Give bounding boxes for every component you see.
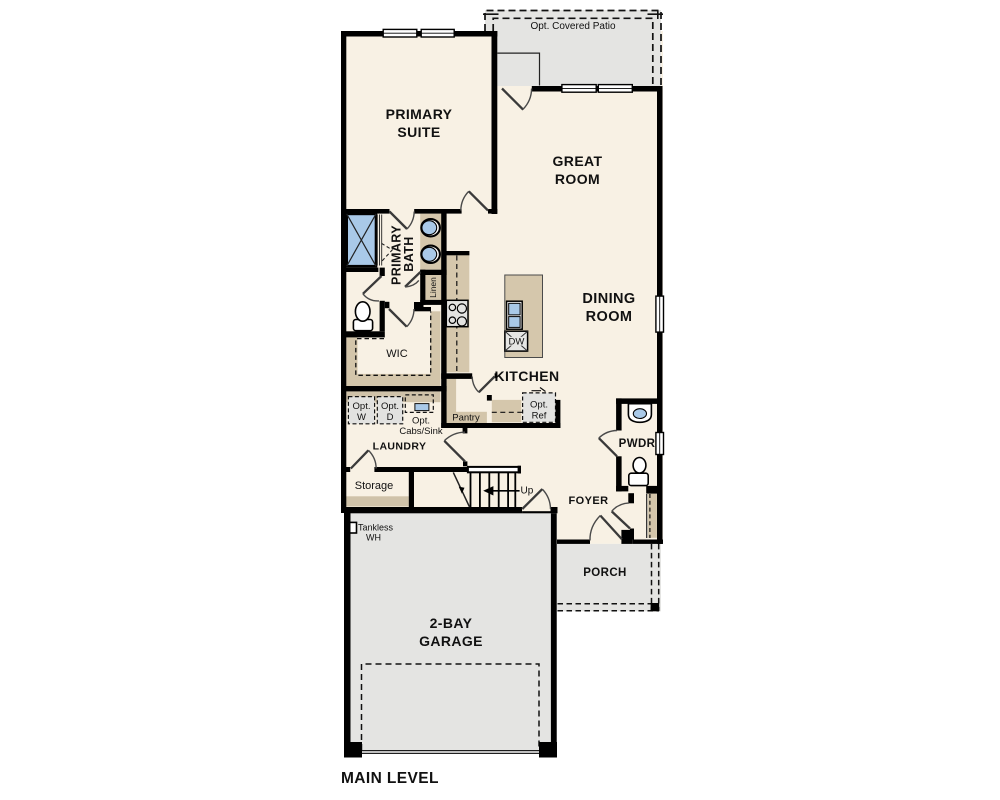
svg-text:ROOM: ROOM [586,309,633,325]
svg-text:MAIN LEVEL: MAIN LEVEL [341,770,439,787]
svg-text:KITCHEN: KITCHEN [494,368,559,384]
svg-text:W: W [357,412,366,423]
svg-text:WH: WH [366,533,381,543]
svg-text:ROOM: ROOM [555,171,600,187]
svg-text:WIC: WIC [386,348,407,360]
svg-text:Ref: Ref [532,411,547,422]
svg-text:GARAGE: GARAGE [419,633,483,649]
svg-text:Opt.: Opt. [381,401,399,412]
svg-text:LAUNDRY: LAUNDRY [373,441,427,453]
svg-text:Cabs/Sink: Cabs/Sink [399,426,443,437]
svg-text:D: D [387,412,394,423]
svg-text:Opt.: Opt. [412,416,430,427]
svg-text:Linen: Linen [428,277,438,298]
svg-text:Storage: Storage [355,480,394,492]
svg-text:PORCH: PORCH [583,567,627,579]
svg-text:DW: DW [508,337,524,348]
svg-text:2-BAY: 2-BAY [430,615,473,631]
svg-text:DINING: DINING [582,291,635,307]
svg-text:PWDR: PWDR [619,438,656,450]
svg-text:Opt.: Opt. [530,400,548,411]
svg-text:Tankless: Tankless [358,523,394,533]
svg-text:Up: Up [521,486,534,497]
svg-text:Opt.: Opt. [353,401,371,412]
svg-text:GREAT: GREAT [553,153,603,169]
svg-text:FOYER: FOYER [569,495,609,507]
svg-text:BATH: BATH [402,236,416,271]
svg-text:Pantry: Pantry [452,413,480,424]
svg-text:SUITE: SUITE [397,124,440,140]
svg-text:PRIMARY: PRIMARY [386,106,453,122]
svg-text:Opt. Covered Patio: Opt. Covered Patio [530,21,615,32]
